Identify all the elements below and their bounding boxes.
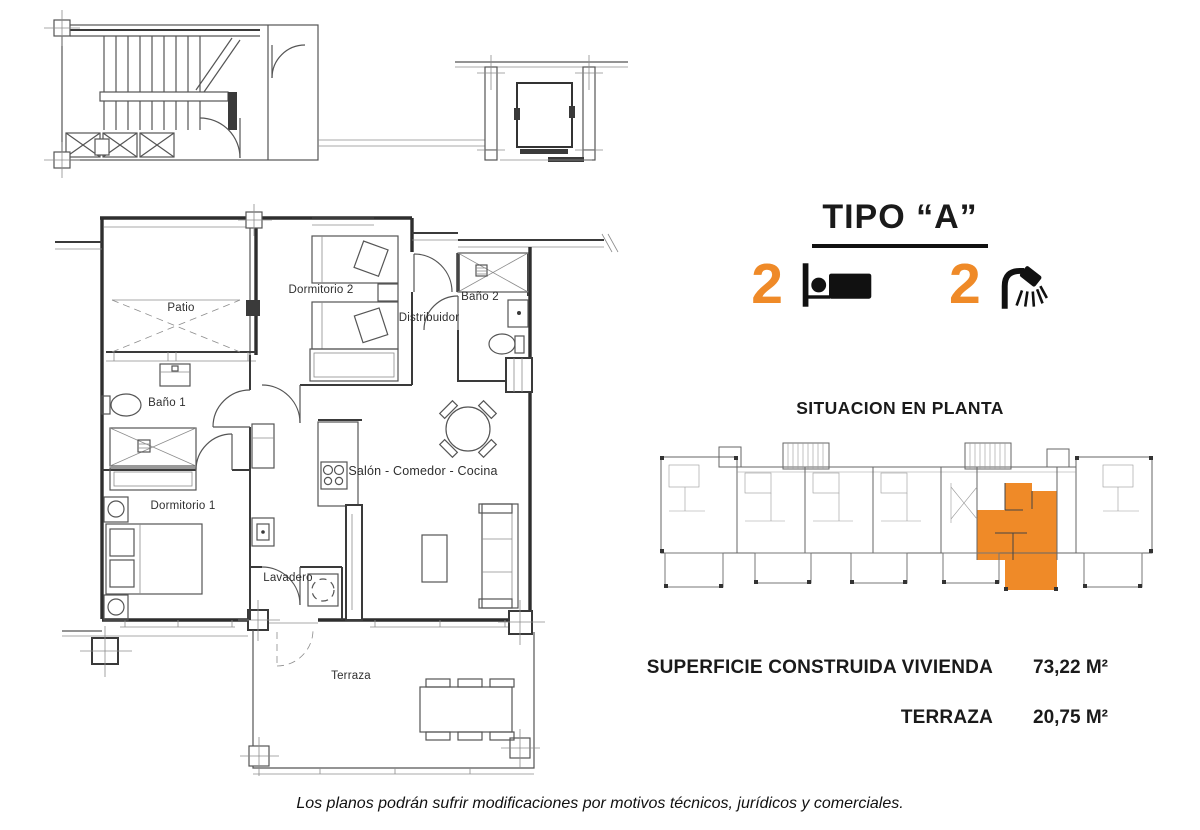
unit-type-title: TIPO “A” bbox=[812, 198, 987, 248]
bed-icon bbox=[797, 261, 877, 309]
terrace-plan bbox=[240, 630, 540, 776]
room-label-patio: Patio bbox=[167, 302, 194, 314]
room-label-bano-1: Baño 1 bbox=[148, 397, 186, 409]
floor-plan-sheet: Patio Dormitorio 2 Baño 2 Distribuidor B… bbox=[0, 0, 1200, 830]
apartment-floor-plan bbox=[0, 0, 660, 830]
highlighted-unit bbox=[977, 483, 1057, 590]
features-row: 2 2 bbox=[640, 256, 1160, 313]
situation-mini-plan bbox=[655, 441, 1160, 601]
furniture bbox=[102, 218, 528, 620]
room-label-terraza: Terraza bbox=[331, 670, 371, 682]
stairwell-plan bbox=[44, 10, 485, 178]
area-row-vivienda: SUPERFICIE CONSTRUIDA VIVIENDA 73,22 M² bbox=[640, 657, 1137, 679]
room-label-salon-comedor-cocina: Salón - Comedor - Cocina bbox=[348, 464, 497, 478]
room-label-distribuidor: Distribuidor bbox=[399, 312, 460, 324]
room-label-bano-2: Baño 2 bbox=[461, 291, 499, 303]
situation-heading: SITUACION EN PLANTA bbox=[640, 398, 1160, 419]
area-label-terraza: TERRAZA bbox=[640, 707, 993, 729]
area-stats: SUPERFICIE CONSTRUIDA VIVIENDA 73,22 M² … bbox=[640, 657, 1137, 729]
shower-icon bbox=[995, 257, 1049, 313]
area-value-terraza: 20,75 M² bbox=[1033, 707, 1137, 729]
room-label-lavadero: Lavadero bbox=[263, 572, 313, 584]
bedroom-count: 2 bbox=[751, 256, 783, 313]
interior-walls bbox=[102, 204, 532, 620]
unit-type-title-wrap: TIPO “A” bbox=[640, 198, 1160, 248]
area-row-terraza: TERRAZA 20,75 M² bbox=[640, 707, 1137, 729]
room-label-dormitorio-1: Dormitorio 1 bbox=[150, 500, 215, 512]
area-label-vivienda: SUPERFICIE CONSTRUIDA VIVIENDA bbox=[640, 657, 993, 679]
room-label-dormitorio-2: Dormitorio 2 bbox=[288, 284, 353, 296]
area-value-vivienda: 73,22 M² bbox=[1033, 657, 1137, 679]
bathroom-count: 2 bbox=[949, 256, 981, 313]
disclaimer-text: Los planos podrán sufrir modificaciones … bbox=[0, 795, 1200, 813]
